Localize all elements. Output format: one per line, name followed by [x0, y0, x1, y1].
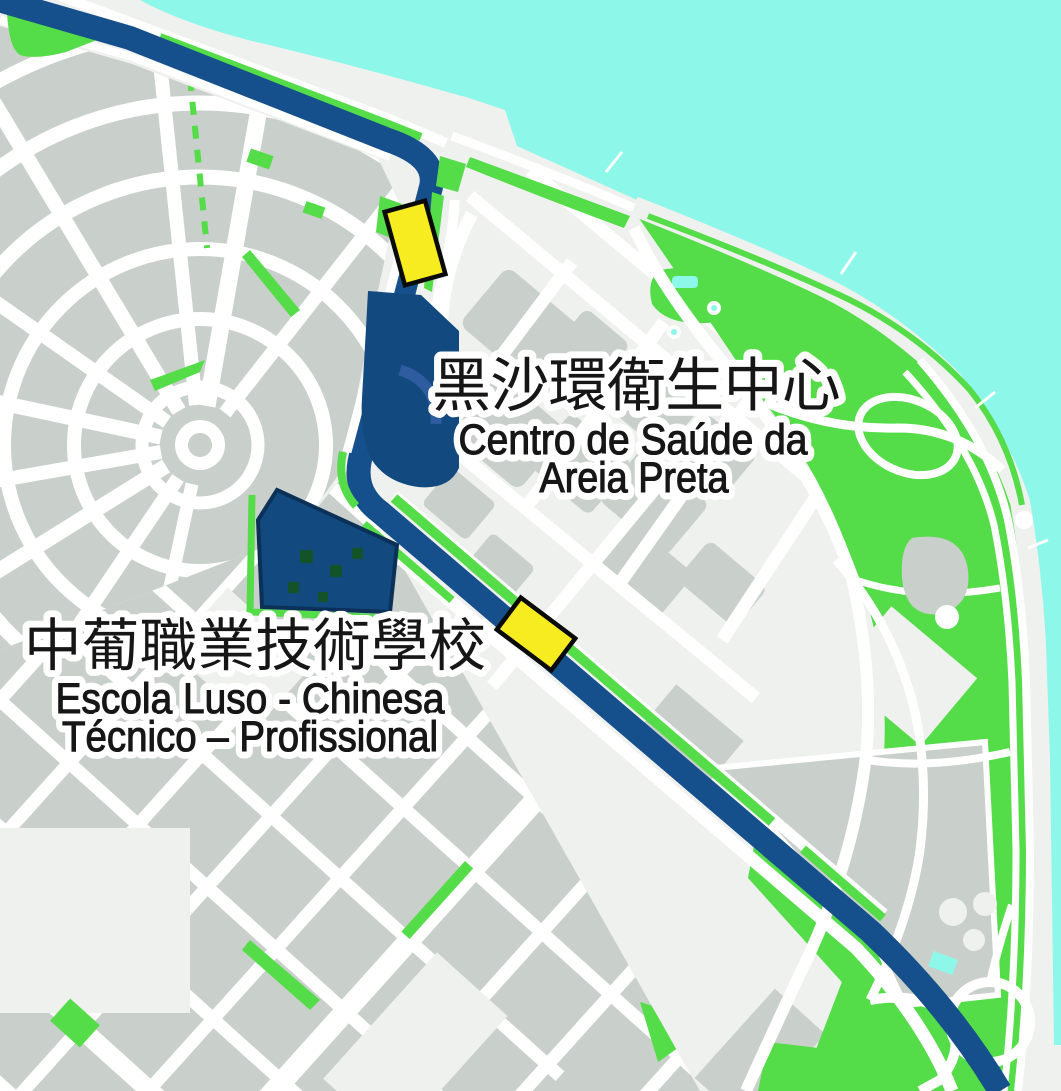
svg-text:Técnico – Profissional: Técnico – Profissional — [62, 713, 438, 761]
svg-text:Areia Preta: Areia Preta — [540, 454, 729, 502]
